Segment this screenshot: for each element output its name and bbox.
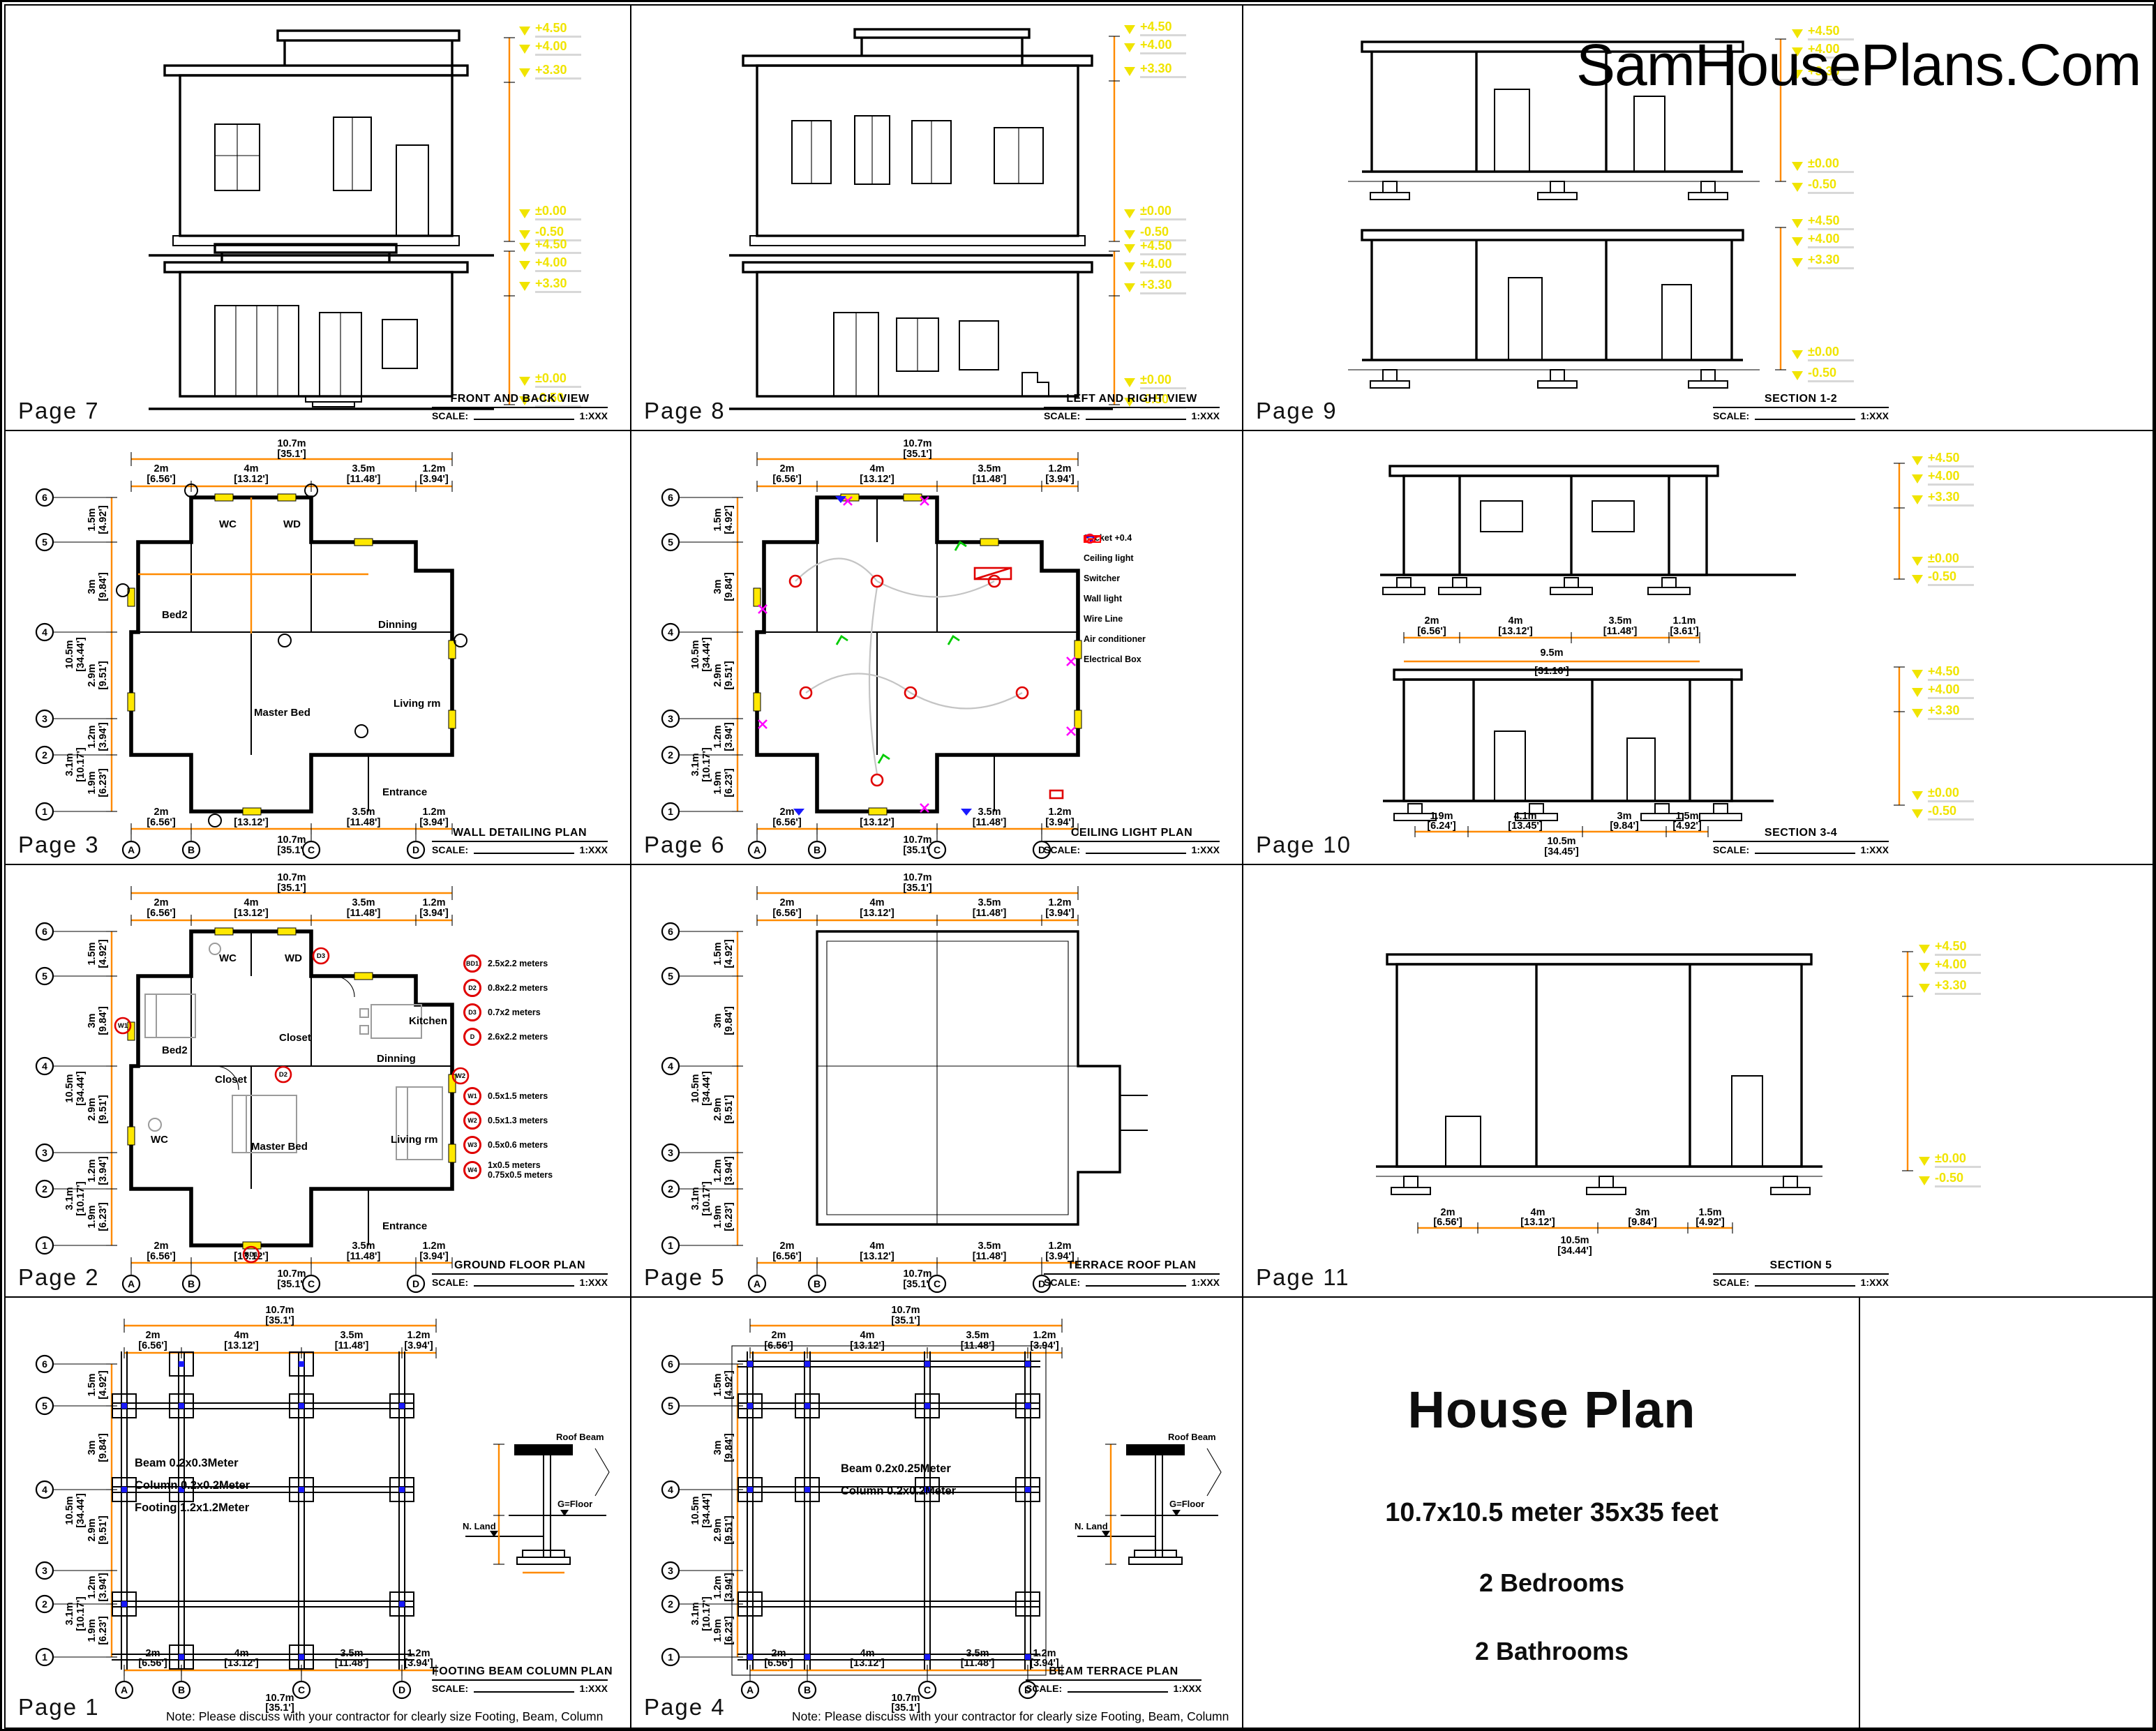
svg-text:1.9m: 1.9m bbox=[712, 1619, 724, 1642]
svg-text:N. Land: N. Land bbox=[1075, 1521, 1108, 1531]
drawing-title: BEAM TERRACE PLAN bbox=[1026, 1665, 1201, 1681]
scale-value: 1:XXX bbox=[1861, 1277, 1889, 1288]
svg-text:5: 5 bbox=[42, 971, 47, 982]
svg-text:1.2m: 1.2m bbox=[712, 1159, 724, 1182]
door-tag-icon: D bbox=[463, 1028, 481, 1046]
svg-text:10.5m: 10.5m bbox=[64, 1074, 75, 1102]
svg-text:WC: WC bbox=[219, 952, 237, 964]
svg-text:[3.94']: [3.94'] bbox=[419, 908, 448, 919]
drawing-title: TERRACE ROOF PLAN bbox=[1044, 1259, 1220, 1275]
svg-text:C: C bbox=[924, 1684, 931, 1695]
elevation-triangle-icon bbox=[1912, 495, 1923, 504]
svg-text:[35.1']: [35.1'] bbox=[903, 1279, 931, 1290]
svg-text:3.5m: 3.5m bbox=[978, 807, 1001, 818]
svg-text:3.5m: 3.5m bbox=[966, 1330, 989, 1341]
drawing-title: WALL DETAILING PLAN bbox=[432, 827, 608, 842]
svg-text:3: 3 bbox=[42, 713, 47, 724]
elevation-triangle-icon bbox=[519, 209, 530, 218]
dimension-chains: 10.7m [35.1'] 2m[6.56'] 4m[13.12'] 3.5m[… bbox=[662, 872, 1078, 1292]
svg-text:2.9m: 2.9m bbox=[712, 1097, 724, 1121]
elevation-triangle-icon bbox=[1912, 575, 1923, 584]
svg-text:3m: 3m bbox=[87, 1441, 98, 1455]
svg-text:1.2m: 1.2m bbox=[1048, 463, 1071, 474]
legend-spacer bbox=[463, 1052, 553, 1087]
elevation-marker: ±0.00 bbox=[1912, 786, 1974, 802]
page-label: Page 3 bbox=[18, 832, 100, 858]
svg-text:Beam 0.2x0.25Meter: Beam 0.2x0.25Meter bbox=[841, 1462, 951, 1475]
svg-text:2m: 2m bbox=[154, 463, 169, 474]
svg-text:B: B bbox=[188, 844, 195, 855]
svg-text:3.5m: 3.5m bbox=[978, 463, 1001, 474]
svg-text:Column 0.2x0.2Meter: Column 0.2x0.2Meter bbox=[135, 1479, 250, 1492]
svg-text:6: 6 bbox=[42, 926, 47, 937]
structure-spec-text: Beam 0.2x0.3Meter Column 0.2x0.2Meter Fo… bbox=[135, 1457, 250, 1514]
elevation-marker: +3.30 bbox=[1124, 61, 1186, 78]
svg-text:[6.56']: [6.56'] bbox=[147, 817, 175, 828]
svg-text:[9.51']: [9.51'] bbox=[724, 1095, 735, 1123]
elevation-triangle-icon bbox=[1124, 378, 1135, 387]
title-block: BEAM TERRACE PLAN SCALE:1:XXX bbox=[1026, 1665, 1201, 1694]
elevation-triangle-icon bbox=[1124, 67, 1135, 76]
elevation-marker: +4.50 bbox=[1919, 939, 1981, 956]
svg-text:3.5m: 3.5m bbox=[1608, 615, 1631, 627]
svg-text:1.2m: 1.2m bbox=[712, 1575, 724, 1598]
svg-text:[9.84']: [9.84'] bbox=[724, 1433, 735, 1462]
svg-text:3.1m: 3.1m bbox=[690, 753, 701, 776]
door-tag-icon: D3 bbox=[463, 1003, 481, 1021]
title-block: SECTION 5 SCALE:1:XXX bbox=[1713, 1259, 1889, 1288]
legend-item: Switcher bbox=[1084, 574, 1146, 583]
elevation-triangle-icon bbox=[1124, 262, 1135, 271]
svg-text:[13.45']: [13.45'] bbox=[1508, 820, 1543, 832]
svg-text:[3.94']: [3.94'] bbox=[404, 1340, 433, 1351]
section-2 bbox=[1348, 227, 1786, 388]
page-label: Page 10 bbox=[1256, 832, 1352, 858]
svg-text:3.1m: 3.1m bbox=[64, 1602, 75, 1625]
drawing-title: LEFT AND RIGHT VIEW bbox=[1044, 393, 1220, 408]
svg-text:2: 2 bbox=[668, 1598, 673, 1610]
svg-text:2.9m: 2.9m bbox=[87, 1518, 98, 1541]
title-block: LEFT AND RIGHT VIEW SCALE:1:XXX bbox=[1044, 393, 1220, 421]
svg-text:5: 5 bbox=[668, 537, 673, 548]
svg-text:[35.1']: [35.1'] bbox=[891, 1315, 920, 1326]
svg-text:3m: 3m bbox=[87, 580, 98, 594]
svg-text:Entrance: Entrance bbox=[382, 786, 427, 798]
page-label: Page 6 bbox=[644, 832, 726, 858]
svg-text:A: A bbox=[128, 844, 135, 855]
elevation-marker: ±0.00 bbox=[1124, 204, 1186, 220]
right-elevation bbox=[729, 251, 1120, 409]
section-3: 2m[6.56'] 4m[13.12'] 3.5m[11.48'] 1.1m[3… bbox=[1380, 463, 1905, 677]
terrace-roof-plan-drawing: 10.7m [35.1'] 2m[6.56'] 4m[13.12'] 3.5m[… bbox=[631, 865, 1243, 1298]
svg-text:1.2m: 1.2m bbox=[87, 1575, 98, 1598]
svg-text:2: 2 bbox=[668, 749, 673, 760]
svg-text:4: 4 bbox=[668, 627, 673, 638]
elevation-triangle-icon bbox=[519, 27, 530, 36]
title-block: SECTION 3-4 SCALE:1:XXX bbox=[1713, 827, 1889, 855]
svg-text:1: 1 bbox=[42, 806, 47, 817]
svg-text:[11.48']: [11.48'] bbox=[347, 1251, 381, 1262]
scale-fill-line bbox=[474, 1285, 574, 1287]
scale-value: 1:XXX bbox=[1192, 410, 1220, 421]
svg-text:[9.84']: [9.84'] bbox=[724, 1006, 735, 1035]
svg-text:[35.1']: [35.1'] bbox=[903, 845, 931, 856]
svg-text:3: 3 bbox=[42, 1147, 47, 1158]
window-tag-icon: W3 bbox=[463, 1136, 481, 1154]
svg-text:2m: 2m bbox=[154, 1241, 169, 1252]
svg-text:C: C bbox=[308, 1278, 315, 1289]
svg-text:[3.94']: [3.94'] bbox=[98, 1573, 109, 1601]
svg-text:2m: 2m bbox=[146, 1330, 160, 1341]
svg-text:10.7m: 10.7m bbox=[265, 1305, 294, 1316]
svg-text:6: 6 bbox=[668, 1358, 673, 1370]
floor-plan-walls bbox=[754, 494, 1081, 815]
elevation-marker: +4.50 bbox=[519, 21, 581, 38]
elevation-marker: ±0.00 bbox=[1124, 373, 1186, 389]
elevation-triangle-icon bbox=[1912, 688, 1923, 697]
svg-text:4m: 4m bbox=[870, 1241, 885, 1252]
elevation-triangle-icon bbox=[519, 243, 530, 252]
svg-text:B: B bbox=[814, 1278, 821, 1289]
panel-page-3: 10.7m [35.1'] 2m[6.56'] 4m[13.12'] 3.5m[… bbox=[6, 431, 631, 865]
elevation-marker: +4.50 bbox=[1124, 20, 1186, 36]
svg-text:10.7m: 10.7m bbox=[891, 1305, 920, 1316]
footing-beam-column-plan-drawing: 10.7m [35.1'] 2m[6.56'] 4m[13.12'] 3.5m[… bbox=[6, 1298, 631, 1728]
svg-text:[11.48']: [11.48'] bbox=[973, 908, 1007, 919]
title-block: TERRACE ROOF PLAN SCALE:1:XXX bbox=[1044, 1259, 1220, 1288]
svg-text:[4.92']: [4.92'] bbox=[724, 939, 735, 968]
svg-text:B: B bbox=[804, 1684, 811, 1695]
svg-text:[34.44']: [34.44'] bbox=[75, 637, 87, 672]
elevation-marker: +4.50 bbox=[1912, 451, 1974, 467]
svg-text:1.1m: 1.1m bbox=[1672, 615, 1695, 627]
project-summary: House Plan 10.7x10.5 meter 35x35 feet 2 … bbox=[1243, 1380, 1860, 1705]
elevation-marker: +3.30 bbox=[519, 63, 581, 80]
svg-text:3.5m: 3.5m bbox=[978, 897, 1001, 908]
scale-label: SCALE: bbox=[1713, 410, 1749, 421]
svg-text:[6.56']: [6.56'] bbox=[147, 908, 175, 919]
svg-text:[31.16']: [31.16'] bbox=[1534, 666, 1569, 677]
svg-text:[35.1']: [35.1'] bbox=[903, 449, 931, 460]
elevation-triangle-icon bbox=[519, 45, 530, 54]
drawing-title: SECTION 3-4 bbox=[1713, 827, 1889, 842]
svg-text:10.5m: 10.5m bbox=[690, 1074, 701, 1102]
scale-value: 1:XXX bbox=[1174, 1683, 1201, 1694]
svg-text:[6.23']: [6.23'] bbox=[98, 768, 109, 797]
svg-text:N. Land: N. Land bbox=[463, 1521, 496, 1531]
svg-text:[34.44']: [34.44'] bbox=[75, 1493, 87, 1528]
elevation-triangle-icon bbox=[1912, 474, 1923, 484]
svg-text:2m: 2m bbox=[1425, 615, 1439, 627]
svg-text:2.9m: 2.9m bbox=[712, 1518, 724, 1541]
svg-text:[13.12']: [13.12'] bbox=[860, 474, 894, 485]
svg-text:1.5m: 1.5m bbox=[87, 508, 98, 531]
drawing-title: FOOTING BEAM COLUMN PLAN bbox=[432, 1665, 608, 1681]
svg-text:9.5m: 9.5m bbox=[1540, 647, 1563, 659]
legend-item: Wire Line bbox=[1084, 614, 1146, 624]
svg-text:Bed2: Bed2 bbox=[162, 1044, 188, 1056]
svg-text:[11.48']: [11.48'] bbox=[973, 1251, 1007, 1262]
wall-detailing-plan-drawing: 10.7m [35.1'] 2m[6.56'] 4m[13.12'] 3.5m[… bbox=[6, 431, 631, 865]
svg-text:10.5m: 10.5m bbox=[690, 640, 701, 668]
elevation-triangle-icon bbox=[1124, 209, 1135, 218]
legend-item: Wall light bbox=[1084, 594, 1146, 604]
panel-page-7: +4.50 +4.00 +3.30 ±0.00 -0.50 +4.50 +4.0… bbox=[6, 6, 631, 431]
scale-fill-line bbox=[474, 853, 574, 854]
elevation-marker: +3.30 bbox=[519, 276, 581, 293]
svg-text:[34.45']: [34.45'] bbox=[1544, 846, 1579, 857]
scale-value: 1:XXX bbox=[580, 1683, 608, 1694]
svg-text:3: 3 bbox=[668, 1565, 673, 1576]
scale-fill-line bbox=[1086, 853, 1185, 854]
elevation-marker: ±0.00 bbox=[1912, 551, 1974, 568]
svg-text:A: A bbox=[754, 1278, 761, 1289]
svg-text:[11.48']: [11.48'] bbox=[347, 474, 381, 485]
legend-item: Air conditioner bbox=[1084, 634, 1146, 644]
drawing-title: SECTION 5 bbox=[1713, 1259, 1889, 1275]
elevation-marker: +4.00 bbox=[1919, 957, 1981, 974]
svg-text:2.9m: 2.9m bbox=[712, 664, 724, 687]
elevation-triangle-icon bbox=[1792, 350, 1803, 359]
svg-text:2m: 2m bbox=[154, 807, 169, 818]
elevation-triangle-icon bbox=[1792, 258, 1803, 267]
svg-text:1.9m: 1.9m bbox=[87, 1205, 98, 1228]
svg-text:1.2m: 1.2m bbox=[1048, 1241, 1071, 1252]
window-tag-icon: W1 bbox=[463, 1087, 481, 1105]
svg-text:10.7m: 10.7m bbox=[277, 438, 306, 449]
svg-text:[13.12']: [13.12'] bbox=[1520, 1217, 1555, 1228]
svg-text:[11.48']: [11.48'] bbox=[347, 908, 381, 919]
elevation-triangle-icon bbox=[1919, 984, 1930, 993]
svg-text:1.9m: 1.9m bbox=[712, 771, 724, 794]
svg-text:Entrance: Entrance bbox=[382, 1220, 427, 1232]
svg-text:3.1m: 3.1m bbox=[690, 1187, 701, 1210]
scale-label: SCALE: bbox=[1713, 844, 1749, 855]
svg-text:D3: D3 bbox=[317, 952, 325, 960]
svg-text:[34.44']: [34.44'] bbox=[701, 1071, 712, 1106]
scale-fill-line bbox=[474, 1691, 574, 1693]
svg-text:4: 4 bbox=[42, 1061, 47, 1072]
svg-text:2: 2 bbox=[42, 749, 47, 760]
scale-value: 1:XXX bbox=[1861, 844, 1889, 855]
svg-text:4m: 4m bbox=[870, 463, 885, 474]
svg-text:1.2m: 1.2m bbox=[422, 807, 445, 818]
panel-title-block: House Plan 10.7x10.5 meter 35x35 feet 2 … bbox=[1243, 1298, 1860, 1728]
svg-text:4m: 4m bbox=[1509, 615, 1523, 627]
svg-text:10.5m: 10.5m bbox=[64, 1496, 75, 1524]
scale-fill-line bbox=[474, 419, 574, 420]
electrical-box-icon bbox=[1084, 533, 1098, 544]
elevation-marker: ±0.00 bbox=[519, 371, 581, 388]
svg-text:5: 5 bbox=[668, 1400, 673, 1411]
page-label: Page 11 bbox=[1256, 1264, 1350, 1291]
project-title: House Plan bbox=[1243, 1380, 1860, 1439]
watermark: SamHousePlans.Com bbox=[1576, 31, 2141, 99]
page-label: Page 7 bbox=[18, 398, 100, 424]
svg-text:W1: W1 bbox=[118, 1022, 128, 1030]
svg-text:3.5m: 3.5m bbox=[978, 1241, 1001, 1252]
svg-text:10.5m: 10.5m bbox=[1547, 836, 1575, 847]
svg-text:10.5m: 10.5m bbox=[690, 1496, 701, 1524]
elevation-triangle-icon bbox=[1912, 709, 1923, 718]
svg-text:1: 1 bbox=[42, 1240, 47, 1251]
scale-value: 1:XXX bbox=[580, 844, 608, 855]
svg-text:5: 5 bbox=[42, 537, 47, 548]
svg-text:2: 2 bbox=[42, 1598, 47, 1610]
svg-text:4: 4 bbox=[668, 1484, 673, 1495]
svg-text:[4.92']: [4.92'] bbox=[724, 1370, 735, 1399]
svg-text:6: 6 bbox=[668, 926, 673, 937]
scale-value: 1:XXX bbox=[1192, 844, 1220, 855]
scale-fill-line bbox=[1755, 1285, 1855, 1287]
svg-text:3.1m: 3.1m bbox=[64, 753, 75, 776]
svg-text:[6.24']: [6.24'] bbox=[1427, 820, 1455, 832]
title-block: CEILING LIGHT PLAN SCALE:1:XXX bbox=[1044, 827, 1220, 855]
svg-text:10.7m: 10.7m bbox=[903, 438, 931, 449]
legend-item: Electrical Box bbox=[1084, 654, 1146, 664]
svg-text:[10.17']: [10.17'] bbox=[75, 1181, 87, 1216]
title-block: WALL DETAILING PLAN SCALE:1:XXX bbox=[432, 827, 608, 855]
beam-terrace-plan-drawing: 10.7m [35.1'] 2m[6.56'] 4m[13.12'] 3.5m[… bbox=[631, 1298, 1243, 1728]
svg-text:1.2m: 1.2m bbox=[1033, 1330, 1056, 1341]
elevation-marker: -0.50 bbox=[1919, 1171, 1981, 1187]
svg-text:6: 6 bbox=[42, 1358, 47, 1370]
ceiling-light-plan-drawing: 10.7m [35.1'] 2m[6.56'] 4m[13.12'] 3.5m[… bbox=[631, 431, 1243, 865]
svg-text:[9.84']: [9.84'] bbox=[1628, 1217, 1656, 1228]
window-tag-icon: W2 bbox=[463, 1111, 481, 1130]
svg-text:6: 6 bbox=[668, 492, 673, 503]
svg-text:10.7m: 10.7m bbox=[903, 1268, 931, 1280]
legend-item: W20.5x1.3 meters bbox=[463, 1111, 553, 1130]
elevation-triangle-icon bbox=[519, 261, 530, 270]
svg-text:1.9m: 1.9m bbox=[712, 1205, 724, 1228]
front-elevation bbox=[149, 31, 515, 255]
svg-text:2.9m: 2.9m bbox=[87, 1097, 98, 1121]
svg-text:WD: WD bbox=[283, 518, 301, 530]
svg-text:[10.17']: [10.17'] bbox=[701, 747, 712, 782]
elevation-marker: -0.50 bbox=[1912, 804, 1974, 820]
elevation-triangle-icon bbox=[1919, 945, 1930, 954]
svg-text:[6.56']: [6.56'] bbox=[1417, 626, 1446, 637]
svg-text:[6.56']: [6.56'] bbox=[147, 474, 175, 485]
elevation-marker: +3.30 bbox=[1792, 253, 1854, 269]
wall-detail-annotations bbox=[117, 484, 467, 827]
elevation-marker: +3.30 bbox=[1912, 490, 1974, 507]
elevation-triangle-icon bbox=[1792, 219, 1803, 228]
panel-page-8: +4.50 +4.00 +3.30 ±0.00 -0.50 +4.50 +4.0… bbox=[631, 6, 1243, 431]
svg-text:G=Floor: G=Floor bbox=[1169, 1499, 1204, 1509]
panel-page-2: 10.7m [35.1'] 2m[6.56'] 4m[13.12'] 3.5m[… bbox=[6, 865, 631, 1298]
svg-text:[9.84']: [9.84'] bbox=[1610, 820, 1638, 832]
window-tag-icon: W4 bbox=[463, 1161, 481, 1179]
elevation-triangle-icon bbox=[1912, 791, 1923, 800]
svg-text:Closet: Closet bbox=[279, 1032, 311, 1044]
scale-label: SCALE: bbox=[432, 1277, 468, 1288]
section-5-drawing: 2m[6.56'] 4m[13.12'] 3m[9.84'] 1.5m[4.92… bbox=[1243, 865, 2153, 1298]
svg-text:G=Floor: G=Floor bbox=[557, 1499, 592, 1509]
scale-label: SCALE: bbox=[432, 1683, 468, 1694]
svg-text:[13.12']: [13.12'] bbox=[224, 1340, 259, 1351]
elevation-marker: -0.50 bbox=[1792, 177, 1854, 194]
svg-text:Roof Beam: Roof Beam bbox=[1168, 1432, 1216, 1442]
svg-text:[3.94']: [3.94'] bbox=[724, 1156, 735, 1185]
svg-text:D: D bbox=[412, 1278, 419, 1289]
svg-text:[4.92']: [4.92'] bbox=[1695, 1217, 1724, 1228]
svg-text:[6.56']: [6.56'] bbox=[147, 1251, 175, 1262]
elevation-marker: -0.50 bbox=[1792, 366, 1854, 382]
elevation-triangle-icon bbox=[1124, 244, 1135, 253]
svg-text:C: C bbox=[934, 844, 941, 855]
svg-text:A: A bbox=[128, 1278, 135, 1289]
svg-text:D2: D2 bbox=[279, 1071, 287, 1079]
svg-text:4: 4 bbox=[668, 1061, 673, 1072]
scale-label: SCALE: bbox=[1044, 1277, 1080, 1288]
svg-text:C: C bbox=[308, 844, 315, 855]
svg-text:1.2m: 1.2m bbox=[422, 1241, 445, 1252]
svg-text:A: A bbox=[747, 1684, 754, 1695]
svg-text:1.5m: 1.5m bbox=[87, 1373, 98, 1396]
svg-text:B: B bbox=[178, 1684, 185, 1695]
svg-text:[4.92']: [4.92'] bbox=[98, 939, 109, 968]
svg-text:1: 1 bbox=[42, 1651, 47, 1663]
scale-label: SCALE: bbox=[432, 844, 468, 855]
svg-text:[4.92']: [4.92'] bbox=[1672, 820, 1701, 832]
svg-text:4: 4 bbox=[42, 1484, 47, 1495]
svg-text:[6.56']: [6.56'] bbox=[138, 1340, 167, 1351]
svg-text:3.5m: 3.5m bbox=[352, 807, 375, 818]
elevation-triangle-icon bbox=[1919, 1176, 1930, 1185]
svg-text:[13.12']: [13.12'] bbox=[234, 908, 269, 919]
svg-text:4: 4 bbox=[42, 627, 47, 638]
svg-text:1.9m: 1.9m bbox=[87, 1619, 98, 1642]
svg-text:1: 1 bbox=[668, 1651, 673, 1663]
elevation-triangle-icon bbox=[1792, 162, 1803, 171]
scale-fill-line bbox=[1755, 853, 1855, 854]
legend-item: W41x0.5 meters0.75x0.5 meters bbox=[463, 1160, 553, 1180]
legend-item: D20.8x2.2 meters bbox=[463, 979, 553, 997]
scale-label: SCALE: bbox=[432, 410, 468, 421]
svg-text:[9.84']: [9.84'] bbox=[98, 1006, 109, 1035]
svg-text:Master Bed: Master Bed bbox=[254, 707, 310, 719]
svg-text:C: C bbox=[934, 1278, 941, 1289]
elevation-triangle-icon bbox=[1792, 371, 1803, 380]
svg-text:[13.12']: [13.12'] bbox=[1498, 626, 1533, 637]
page-label: Page 5 bbox=[644, 1264, 726, 1291]
title-block: FRONT AND BACK VIEW SCALE:1:XXX bbox=[432, 393, 608, 421]
svg-text:[10.17']: [10.17'] bbox=[701, 1596, 712, 1631]
svg-text:[3.94']: [3.94'] bbox=[1045, 474, 1074, 485]
elevation-marker: +4.00 bbox=[1124, 38, 1186, 54]
svg-text:10.7m: 10.7m bbox=[903, 834, 931, 846]
legend-item: Ceiling light bbox=[1084, 553, 1146, 563]
svg-text:[3.94']: [3.94'] bbox=[1045, 908, 1074, 919]
svg-text:[3.94']: [3.94'] bbox=[98, 1156, 109, 1185]
svg-text:[9.51']: [9.51'] bbox=[98, 1515, 109, 1544]
svg-text:[3.94']: [3.94'] bbox=[98, 722, 109, 751]
svg-text:4m: 4m bbox=[234, 1330, 249, 1341]
elevation-marker: +3.30 bbox=[1912, 703, 1974, 720]
svg-text:BD1: BD1 bbox=[244, 1251, 258, 1259]
svg-text:2m: 2m bbox=[772, 1330, 786, 1341]
elevation-marker: +4.50 bbox=[519, 237, 581, 254]
title-block: FOOTING BEAM COLUMN PLAN SCALE:1:XXX bbox=[432, 1665, 608, 1694]
elevation-triangle-icon bbox=[519, 68, 530, 77]
svg-text:[6.23']: [6.23'] bbox=[98, 1616, 109, 1644]
svg-text:3m: 3m bbox=[87, 1014, 98, 1028]
svg-text:10.5m: 10.5m bbox=[64, 640, 75, 668]
legend-item: BD12.5x2.2 meters bbox=[463, 954, 553, 973]
drawing-title: GROUND FLOOR PLAN bbox=[432, 1259, 608, 1275]
